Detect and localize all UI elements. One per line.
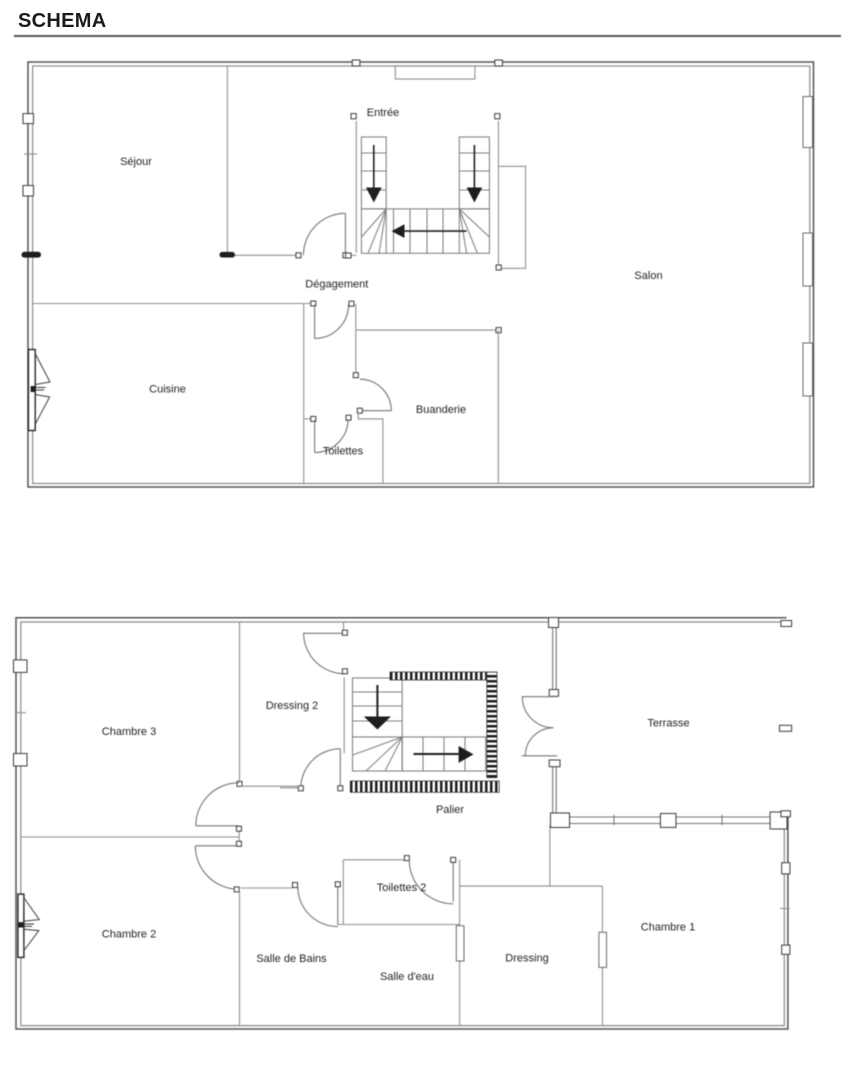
- svg-text:Salon: Salon: [634, 270, 662, 282]
- svg-text:Toilettes: Toilettes: [323, 446, 364, 458]
- svg-text:Dégagement: Dégagement: [305, 279, 368, 291]
- svg-text:Salle de Bains: Salle de Bains: [256, 953, 327, 965]
- svg-text:Toilettes 2: Toilettes 2: [377, 882, 427, 894]
- svg-text:Séjour: Séjour: [120, 156, 152, 168]
- svg-text:Chambre 1: Chambre 1: [641, 922, 695, 934]
- svg-text:Dressing: Dressing: [505, 953, 548, 965]
- svg-text:Dressing 2: Dressing 2: [266, 700, 319, 712]
- svg-text:Buanderie: Buanderie: [416, 404, 466, 416]
- svg-text:Salle d'eau: Salle d'eau: [380, 971, 434, 983]
- svg-text:Cuisine: Cuisine: [149, 384, 186, 396]
- svg-text:Chambre 3: Chambre 3: [102, 726, 156, 738]
- svg-text:Chambre 2: Chambre 2: [102, 929, 156, 941]
- svg-text:Terrasse: Terrasse: [647, 718, 689, 730]
- svg-text:Palier: Palier: [436, 804, 464, 816]
- svg-text:Entrée: Entrée: [367, 107, 399, 119]
